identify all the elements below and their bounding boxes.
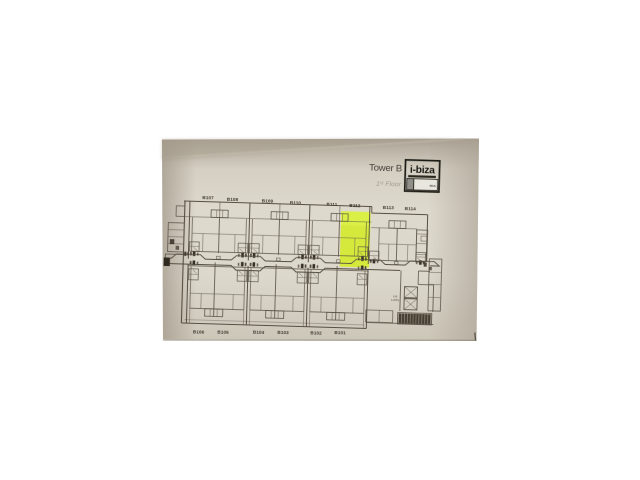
svg-text:B101: B101 xyxy=(334,330,346,335)
svg-text:RCA: RCA xyxy=(430,184,436,188)
svg-text:B105: B105 xyxy=(217,330,229,335)
svg-text:Tower B: Tower B xyxy=(369,163,402,175)
svg-text:B103: B103 xyxy=(277,330,289,335)
svg-text:B110: B110 xyxy=(290,200,302,205)
svg-text:i-biza: i-biza xyxy=(410,165,436,177)
svg-text:B109: B109 xyxy=(262,198,274,203)
svg-text:B102: B102 xyxy=(310,330,322,335)
svg-text:B111: B111 xyxy=(326,202,337,207)
svg-text:B108: B108 xyxy=(227,197,239,202)
svg-text:B112: B112 xyxy=(349,203,361,208)
svg-text:B104: B104 xyxy=(253,330,265,335)
svg-text:Lobby: Lobby xyxy=(391,298,400,302)
svg-text:B107: B107 xyxy=(202,195,214,200)
svg-text:B114: B114 xyxy=(405,206,417,211)
svg-text:B106: B106 xyxy=(193,330,205,335)
svg-text:B113: B113 xyxy=(383,205,395,210)
